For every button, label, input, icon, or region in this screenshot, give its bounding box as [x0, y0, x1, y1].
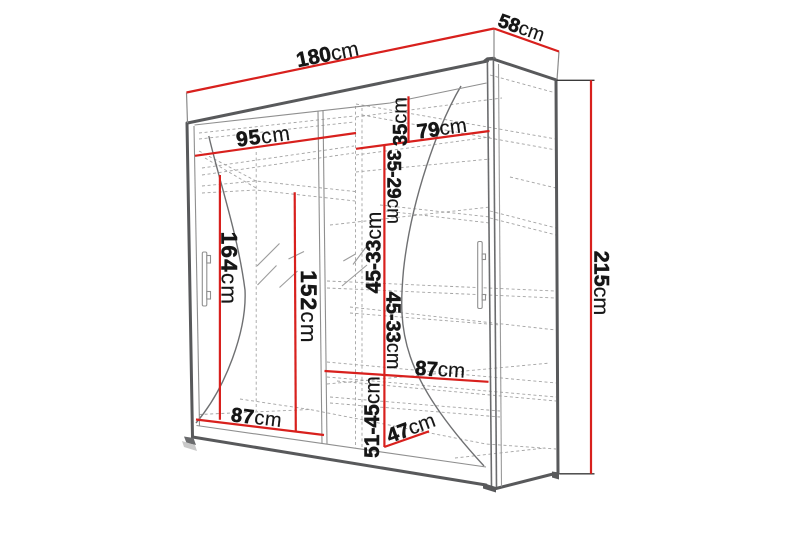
svg-text:164cm: 164cm — [217, 232, 242, 306]
svg-text:45-33cm: 45-33cm — [382, 292, 404, 370]
svg-text:35-29cm: 35-29cm — [382, 150, 403, 224]
svg-text:152cm: 152cm — [296, 270, 321, 344]
svg-text:215cm: 215cm — [589, 251, 613, 316]
svg-text:45-33cm: 45-33cm — [363, 212, 386, 294]
svg-text:35cm: 35cm — [390, 97, 412, 146]
svg-text:87cm: 87cm — [414, 357, 466, 383]
svg-text:51-45cm: 51-45cm — [361, 376, 384, 458]
